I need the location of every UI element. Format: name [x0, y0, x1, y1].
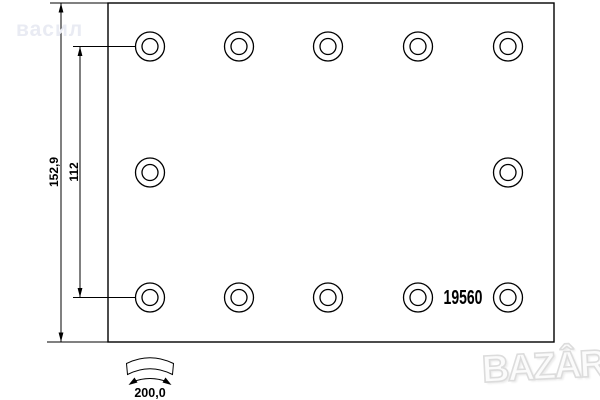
- rivet-hole: [225, 283, 254, 312]
- rivet-hole-inner-circle: [231, 290, 247, 306]
- rivet-hole: [136, 283, 165, 312]
- rivet-hole-inner-circle: [410, 39, 426, 55]
- watermark-site-logo: BAZÂR: [481, 343, 600, 392]
- dimension-total-height: 152,9: [47, 3, 63, 342]
- rivet-hole-inner-circle: [231, 39, 247, 55]
- arc-profile: 200,0: [127, 358, 174, 400]
- rivet-hole: [314, 32, 343, 61]
- rivet-hole-inner-circle: [142, 290, 158, 306]
- rivet-hole: [136, 158, 165, 187]
- rivet-hole: [494, 158, 523, 187]
- rivet-hole-inner-circle: [500, 290, 516, 306]
- part-number-label: 19560: [444, 285, 483, 308]
- arc-profile-band: [127, 358, 174, 375]
- arrowhead-up-icon: [59, 3, 64, 13]
- rivet-hole: [494, 32, 523, 61]
- drawing-canvas: 152,9 112 19560 200,0: [0, 0, 600, 400]
- rivet-hole-inner-circle: [320, 39, 336, 55]
- rivet-hole-inner-circle: [320, 290, 336, 306]
- dimension-label-total-height: 152,9: [47, 157, 61, 187]
- arrowhead-left-icon: [129, 378, 138, 386]
- dimension-label-hole-span: 112: [67, 162, 81, 182]
- technical-drawing: 152,9 112 19560 200,0 васил BAZÂR: [0, 0, 600, 400]
- rivet-hole-inner-circle: [142, 39, 158, 55]
- rivet-hole-inner-circle: [500, 39, 516, 55]
- arrowhead-down-icon: [59, 333, 64, 343]
- rivet-hole-inner-circle: [142, 165, 158, 181]
- dimension-label-arc-width: 200,0: [134, 386, 165, 400]
- dimension-hole-span: 112: [67, 47, 82, 298]
- rivet-hole-inner-circle: [500, 165, 516, 181]
- arrowhead-right-icon: [163, 378, 172, 386]
- arrowhead-down-icon: [78, 288, 83, 298]
- watermark-seller: васил: [16, 18, 83, 42]
- rivet-hole: [136, 32, 165, 61]
- arrowhead-up-icon: [78, 47, 83, 57]
- rivet-hole: [225, 32, 254, 61]
- rivet-hole: [314, 283, 343, 312]
- rivet-hole: [404, 32, 433, 61]
- rivet-hole-inner-circle: [410, 290, 426, 306]
- rivet-hole: [494, 283, 523, 312]
- rivet-hole: [404, 283, 433, 312]
